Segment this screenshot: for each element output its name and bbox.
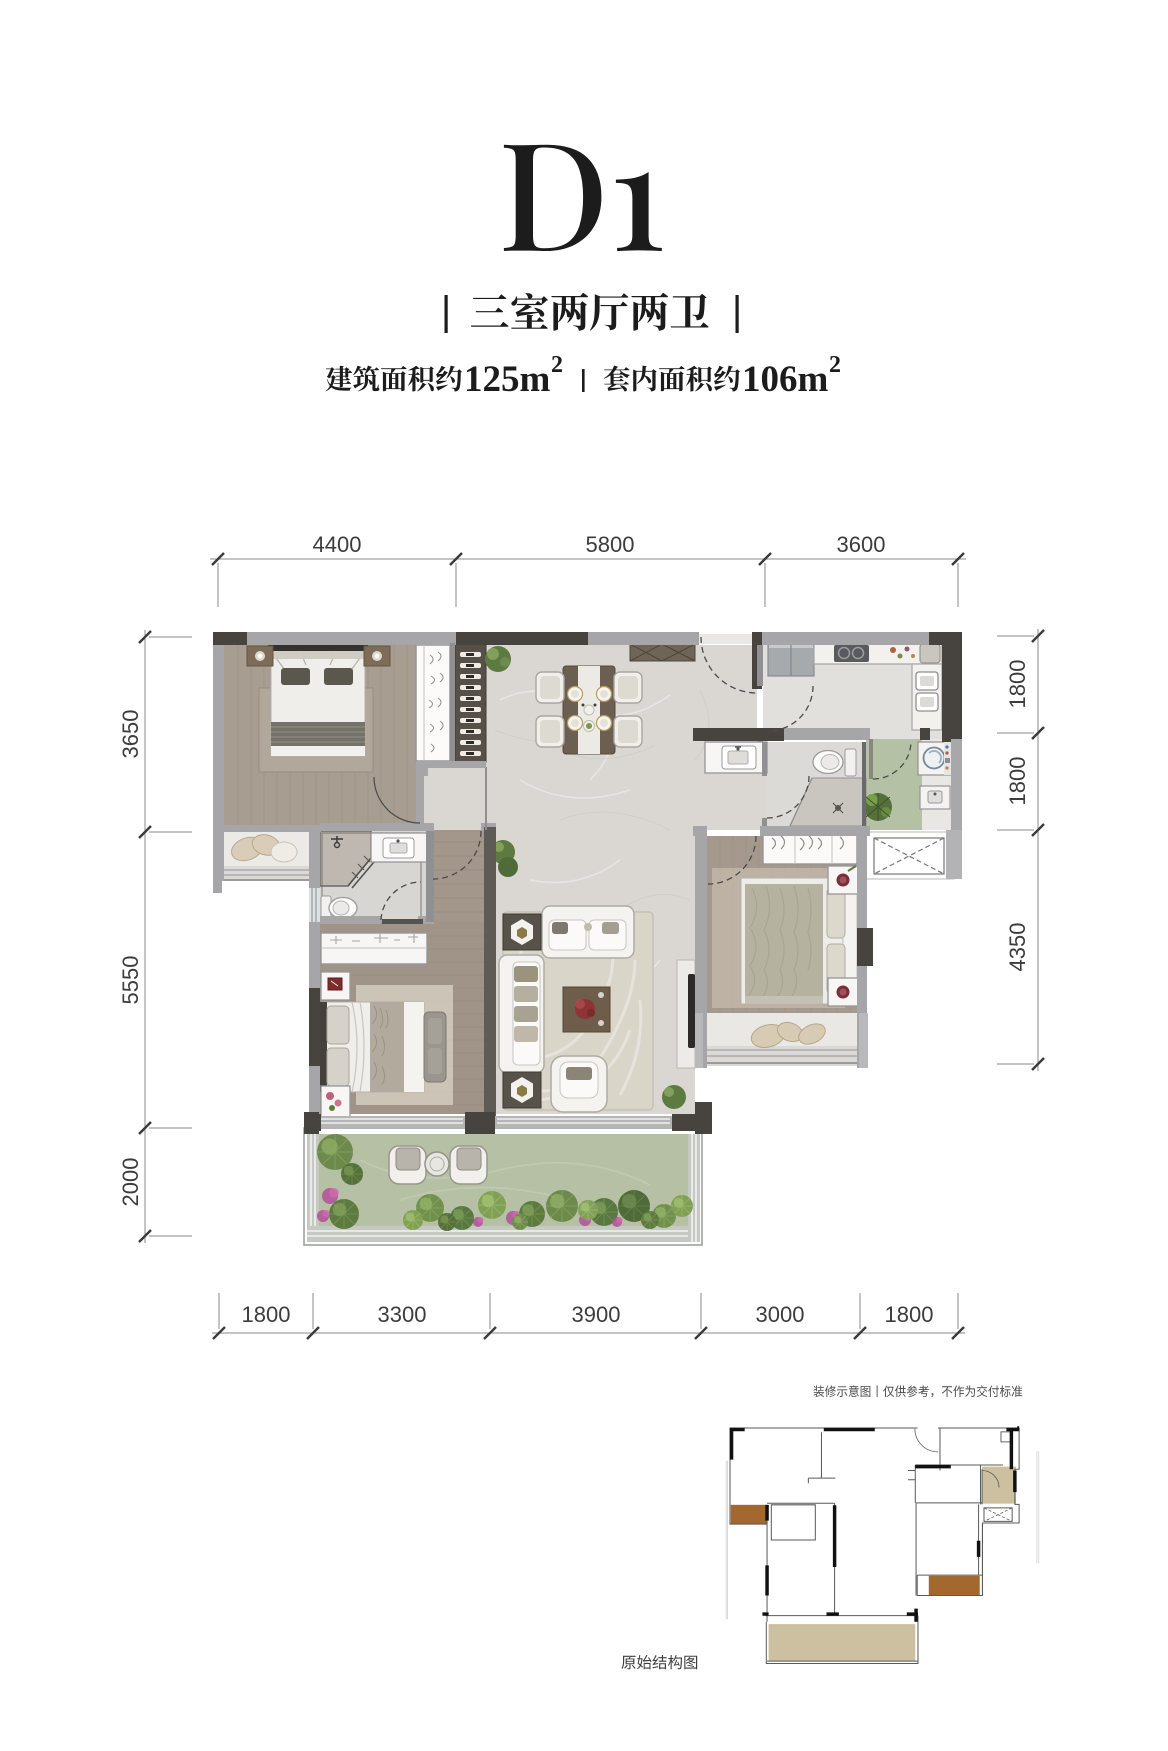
svg-text:4400: 4400 xyxy=(313,532,362,557)
svg-text:2000: 2000 xyxy=(118,1158,143,1207)
svg-text:1800: 1800 xyxy=(1005,660,1030,709)
svg-text:1800: 1800 xyxy=(242,1302,291,1327)
svg-text:125m: 125m xyxy=(464,359,551,400)
svg-text:3600: 3600 xyxy=(837,532,886,557)
svg-text:3650: 3650 xyxy=(118,710,143,759)
svg-text:5800: 5800 xyxy=(586,532,635,557)
svg-text:5550: 5550 xyxy=(118,956,143,1005)
svg-text:1800: 1800 xyxy=(885,1302,934,1327)
svg-text:2: 2 xyxy=(829,352,841,378)
svg-text:2: 2 xyxy=(551,352,563,378)
svg-text:3900: 3900 xyxy=(572,1302,621,1327)
svg-text:1800: 1800 xyxy=(1005,757,1030,806)
svg-text:106m: 106m xyxy=(742,359,829,400)
svg-text:4350: 4350 xyxy=(1005,923,1030,972)
svg-text:3000: 3000 xyxy=(756,1302,805,1327)
svg-text:3300: 3300 xyxy=(378,1302,427,1327)
